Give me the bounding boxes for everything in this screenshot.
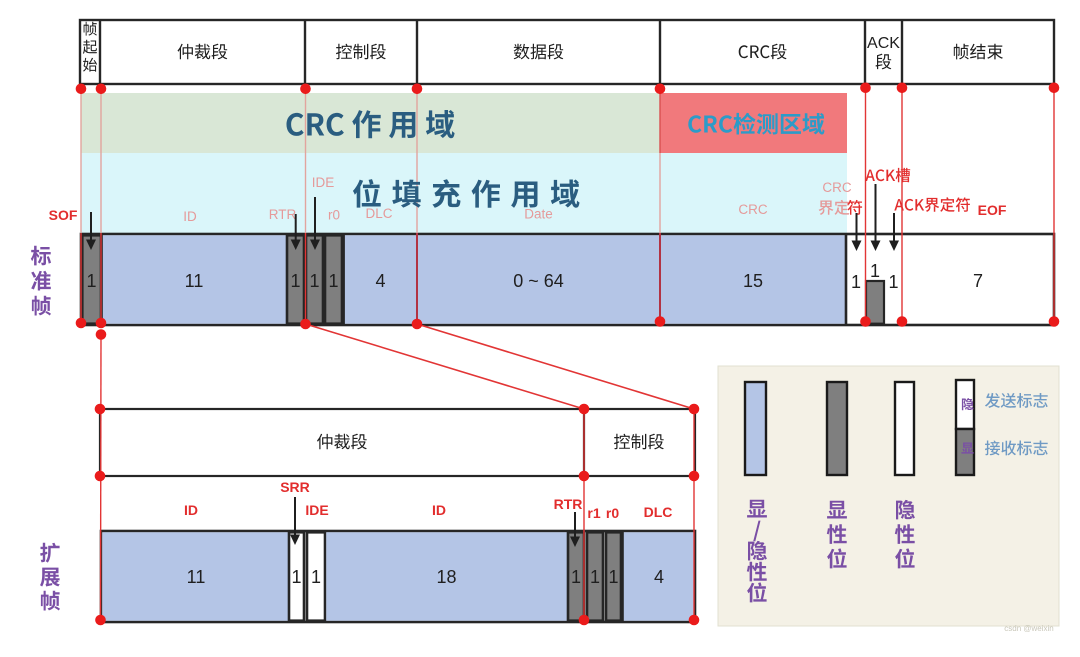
svg-text:1: 1 [571,567,581,587]
svg-text:1: 1 [290,271,300,291]
svg-text:EOF: EOF [978,202,1007,218]
svg-text:1: 1 [590,567,600,587]
svg-text:18: 18 [436,567,456,587]
svg-text:1: 1 [888,272,898,292]
svg-text:1: 1 [291,567,301,587]
svg-text:IDE: IDE [312,175,335,190]
svg-text:Date: Date [524,207,553,222]
svg-text:1: 1 [870,261,880,281]
svg-text:4: 4 [654,567,664,587]
svg-text:15: 15 [743,271,763,291]
svg-text:DLC: DLC [644,504,673,520]
svg-text:11: 11 [187,567,206,587]
svg-text:ID: ID [183,209,197,224]
svg-text:RTR: RTR [269,207,297,222]
svg-text:1: 1 [309,271,319,291]
svg-text:ID: ID [432,502,446,518]
svg-text:1: 1 [851,272,861,292]
svg-text:RTR: RTR [554,496,583,512]
svg-text:IDE: IDE [305,502,328,518]
svg-text:SOF: SOF [49,207,78,223]
svg-text:SRR: SRR [280,479,310,495]
svg-text:1: 1 [311,567,321,587]
svg-text:csdn @weixin: csdn @weixin [1004,624,1053,633]
svg-text:1: 1 [608,567,618,587]
svg-text:r0: r0 [328,208,340,223]
svg-text:r1: r1 [587,505,600,521]
svg-text:1: 1 [328,271,338,291]
svg-text:11: 11 [185,271,204,291]
svg-text:CRC: CRC [738,202,767,217]
svg-text:CRC: CRC [822,180,851,195]
svg-text:1: 1 [86,271,96,291]
svg-text:ACK: ACK [867,35,900,52]
svg-text:DLC: DLC [365,206,392,221]
svg-text:r0: r0 [606,505,619,521]
svg-text:0 ~ 64: 0 ~ 64 [513,271,564,291]
svg-text:4: 4 [375,271,385,291]
svg-text:7: 7 [973,271,983,291]
svg-text:ID: ID [184,502,198,518]
